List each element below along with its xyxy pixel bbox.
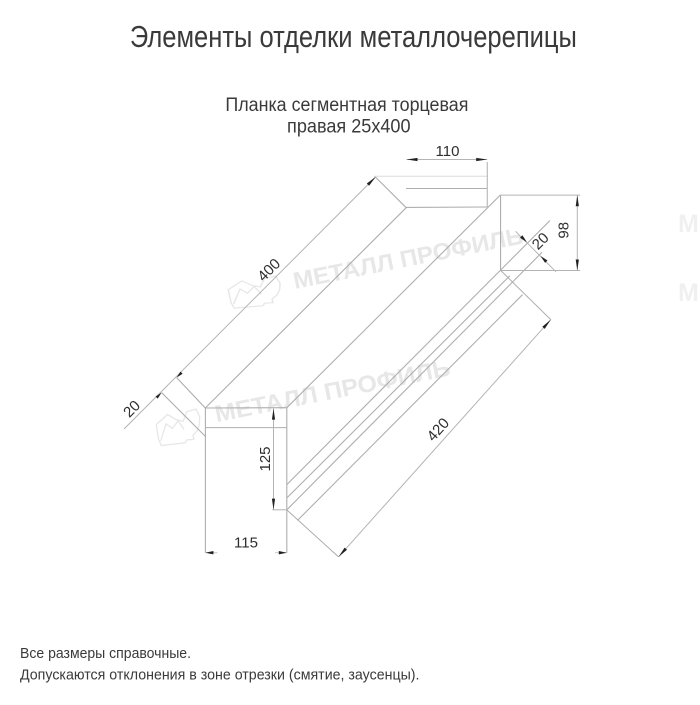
svg-text:110: 110 [436, 143, 460, 160]
svg-text:Все размеры справочные.: Все размеры справочные. [20, 645, 191, 662]
svg-text:Допускаются отклонения в зоне: Допускаются отклонения в зоне отрезки (с… [20, 667, 420, 684]
svg-text:правая 25x400: правая 25x400 [287, 117, 411, 138]
svg-text:МЕ: МЕ [678, 279, 700, 307]
svg-text:Элементы отделки металлочерепи: Элементы отделки металлочерепицы [130, 19, 577, 54]
svg-text:МЕ: МЕ [678, 210, 700, 238]
svg-text:125: 125 [257, 446, 274, 471]
svg-text:115: 115 [234, 534, 258, 551]
svg-text:Планка сегментная торцевая: Планка сегментная торцевая [225, 95, 468, 116]
svg-text:98: 98 [555, 222, 572, 239]
